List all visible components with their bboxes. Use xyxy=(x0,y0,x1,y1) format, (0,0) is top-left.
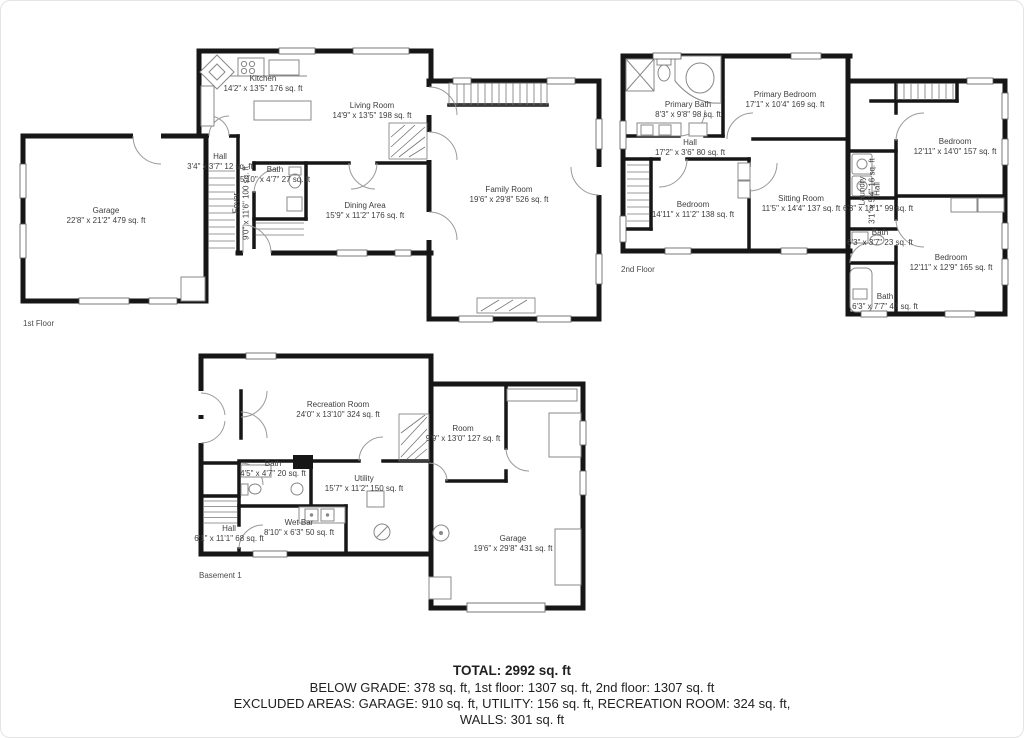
room-label-utility: Utility 15'7" x 11'2" 150 sq. ft xyxy=(325,474,403,493)
caption-basement: Basement 1 xyxy=(199,571,242,580)
floorplan-graphic xyxy=(1,1,1024,738)
room-label-living-room: Living Room 14'9" x 13'5" 198 sq. ft xyxy=(332,101,411,120)
room-label-primary-bath: Primary Bath 8'3" x 9'8" 98 sq. ft xyxy=(655,100,721,119)
summary-excluded-line: EXCLUDED AREAS: GARAGE: 910 sq. ft, UTIL… xyxy=(1,696,1023,712)
room-label-garage-basement: Garage 19'6" x 29'8" 431 sq. ft xyxy=(473,534,552,553)
floorplan-page: Kitchen 14'2" x 13'5" 176 sq. ft Living … xyxy=(0,0,1024,738)
summary-walls-line: WALLS: 301 sq. ft xyxy=(1,712,1023,728)
room-label-recreation-room: Recreation Room 24'0" x 13'10" 324 sq. f… xyxy=(296,400,379,419)
room-label-bedroom-left: Bedroom 14'11" x 11'2" 138 sq. ft xyxy=(652,200,734,219)
room-label-hall-basement: Hall 6'1" x 11'1" 68 sq. ft xyxy=(194,524,264,543)
caption-second-floor: 2nd Floor xyxy=(621,265,655,274)
room-label-garage-1f: Garage 22'8" x 21'2" 479 sq. ft xyxy=(66,206,145,225)
room-label-bath-middle: Bath 6'3" x 3'7" 23 sq. ft xyxy=(847,228,913,247)
room-label-bath-basement: Bath 4'5" x 4'7" 20 sq. ft xyxy=(240,459,306,478)
summary-total: TOTAL: 2992 sq. ft xyxy=(1,662,1023,680)
room-label-dining-area: Dining Area 15'9" x 11'2" 176 sq. ft xyxy=(326,201,404,220)
room-label-bath-bottom: Bath 6'3" x 7'7" 47 sq. ft xyxy=(852,292,918,311)
room-label-bedroom-top-right: Bedroom 12'11" x 14'0" 157 sq. ft xyxy=(914,137,997,156)
summary-grade-line: BELOW GRADE: 378 sq. ft, 1st floor: 1307… xyxy=(1,680,1023,696)
area-summary: TOTAL: 2992 sq. ft BELOW GRADE: 378 sq. … xyxy=(1,662,1023,728)
room-label-room: Room 9'9" x 13'0" 127 sq. ft xyxy=(426,424,501,443)
room-label-primary-bedroom: Primary Bedroom 17'1" x 10'4" 169 sq. ft xyxy=(745,90,824,109)
caption-first-floor: 1st Floor xyxy=(23,319,54,328)
room-label-wet-bar: Wet Bar 8'10" x 6'3" 50 sq. ft xyxy=(264,518,334,537)
room-label-kitchen: Kitchen 14'2" x 13'5" 176 sq. ft xyxy=(223,74,302,93)
room-label-hall-2f: Hall 17'2" x 3'6" 80 sq. ft xyxy=(655,138,725,157)
room-dims-hall-2f-vert: 6'3" x 18'1" 99 sq. ft xyxy=(843,204,913,214)
room-label-hall-2f-vert: Hall xyxy=(872,182,882,196)
room-label-sitting-room: Sitting Room 11'5" x 14'4" 137 sq. ft xyxy=(762,194,840,213)
room-label-bath-1f: Bath 5'10" x 4'7" 27 sq. ft xyxy=(240,165,310,184)
room-label-bedroom-bottom-right: Bedroom 12'11" x 12'9" 165 sq. ft xyxy=(910,253,993,272)
room-label-family-room: Family Room 19'6" x 29'8" 526 sq. ft xyxy=(469,185,548,204)
